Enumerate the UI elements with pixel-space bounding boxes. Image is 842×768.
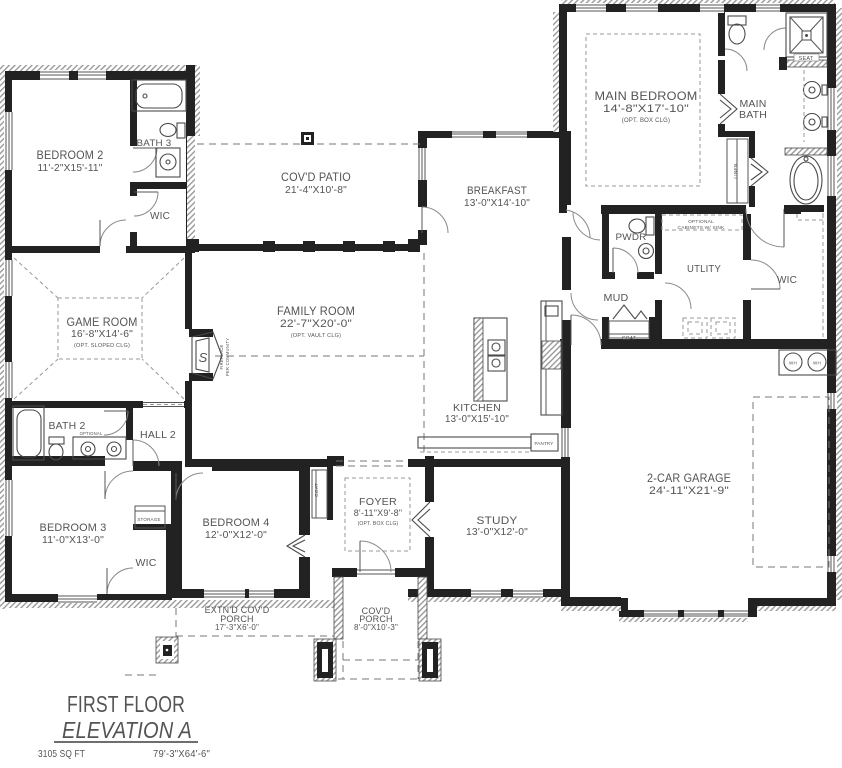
svg-text:11'-0"X13'-0": 11'-0"X13'-0": [42, 534, 104, 546]
svg-text:14'-8"X17'-10": 14'-8"X17'-10": [603, 103, 689, 115]
svg-text:WIC: WIC: [150, 211, 170, 222]
svg-text:STORAGE: STORAGE: [137, 517, 160, 522]
svg-text:BREAKFAST: BREAKFAST: [467, 185, 527, 197]
svg-text:PANTRY: PANTRY: [534, 441, 553, 446]
svg-text:COAT: COAT: [314, 483, 320, 497]
svg-text:(OPT. BOX CLG): (OPT. BOX CLG): [622, 118, 670, 124]
svg-text:SEAT: SEAT: [799, 56, 814, 62]
svg-text:(OPT. SLOPED CLG): (OPT. SLOPED CLG): [74, 343, 130, 349]
svg-text:FIREPLACE: FIREPLACE: [219, 344, 224, 369]
svg-text:16'-8"X14'-6": 16'-8"X14'-6": [71, 328, 133, 340]
svg-text:13'-0"X15'-10": 13'-0"X15'-10": [445, 414, 509, 425]
svg-text:PWDR: PWDR: [616, 232, 647, 243]
svg-text:ELEVATION A: ELEVATION A: [62, 717, 192, 743]
svg-text:BATH 3: BATH 3: [137, 138, 172, 149]
svg-text:PER COMMUNITY: PER COMMUNITY: [225, 338, 230, 376]
svg-text:24'-11"X21'-9": 24'-11"X21'-9": [649, 485, 729, 497]
svg-text:8'-11"X9'-8": 8'-11"X9'-8": [354, 508, 403, 518]
svg-text:WH: WH: [813, 361, 821, 366]
svg-text:11'-2"X15'-11": 11'-2"X15'-11": [38, 162, 103, 174]
svg-text:BEDROOM 4: BEDROOM 4: [203, 517, 270, 529]
svg-text:HALL 2: HALL 2: [140, 430, 176, 441]
svg-text:FIRST FLOOR: FIRST FLOOR: [67, 691, 185, 717]
svg-text:OPTIONAL: OPTIONAL: [688, 219, 714, 225]
svg-text:UTLITY: UTLITY: [687, 264, 721, 275]
svg-text:COAT: COAT: [622, 336, 636, 342]
svg-text:8'-0"X10'-3": 8'-0"X10'-3": [354, 623, 398, 632]
svg-text:BEDROOM 2: BEDROOM 2: [37, 150, 104, 162]
svg-text:WIC: WIC: [135, 557, 156, 569]
svg-text:LINEN: LINEN: [733, 163, 739, 178]
svg-text:FOYER: FOYER: [359, 497, 397, 508]
svg-text:12'-0"X12'-0": 12'-0"X12'-0": [205, 529, 267, 541]
svg-text:MUD: MUD: [604, 293, 629, 304]
svg-text:WH: WH: [789, 361, 797, 366]
svg-text:13'-0"X12'-0": 13'-0"X12'-0": [466, 526, 528, 538]
svg-text:22'-7"X20'-0": 22'-7"X20'-0": [280, 318, 352, 330]
svg-text:3105 SQ FT: 3105 SQ FT: [38, 748, 85, 760]
svg-text:FAMILY ROOM: FAMILY ROOM: [277, 304, 355, 318]
svg-text:CABINETS W/ SINK: CABINETS W/ SINK: [678, 225, 726, 231]
svg-text:21'-4"X10'-8": 21'-4"X10'-8": [285, 184, 347, 196]
svg-text:(OPT. VAULT CLG): (OPT. VAULT CLG): [291, 333, 341, 339]
svg-text:BEDROOM 3: BEDROOM 3: [40, 522, 107, 534]
svg-text:S: S: [199, 350, 208, 365]
svg-text:OPTIONAL: OPTIONAL: [80, 431, 103, 436]
svg-text:WIC: WIC: [777, 275, 797, 286]
svg-text:BATH: BATH: [739, 109, 767, 121]
svg-text:KITCHEN: KITCHEN: [453, 402, 501, 414]
svg-text:17'-3"X6'-0": 17'-3"X6'-0": [215, 623, 259, 632]
svg-text:COV'D PATIO: COV'D PATIO: [281, 172, 351, 184]
svg-text:2-CAR GARAGE: 2-CAR GARAGE: [647, 471, 731, 485]
svg-text:(OPT. BOX CLG): (OPT. BOX CLG): [358, 521, 399, 527]
svg-text:MAIN BEDROOM: MAIN BEDROOM: [595, 89, 698, 103]
svg-text:79'-3"X64'-6": 79'-3"X64'-6": [153, 748, 210, 760]
svg-text:13'-0"X14'-10": 13'-0"X14'-10": [464, 197, 530, 209]
